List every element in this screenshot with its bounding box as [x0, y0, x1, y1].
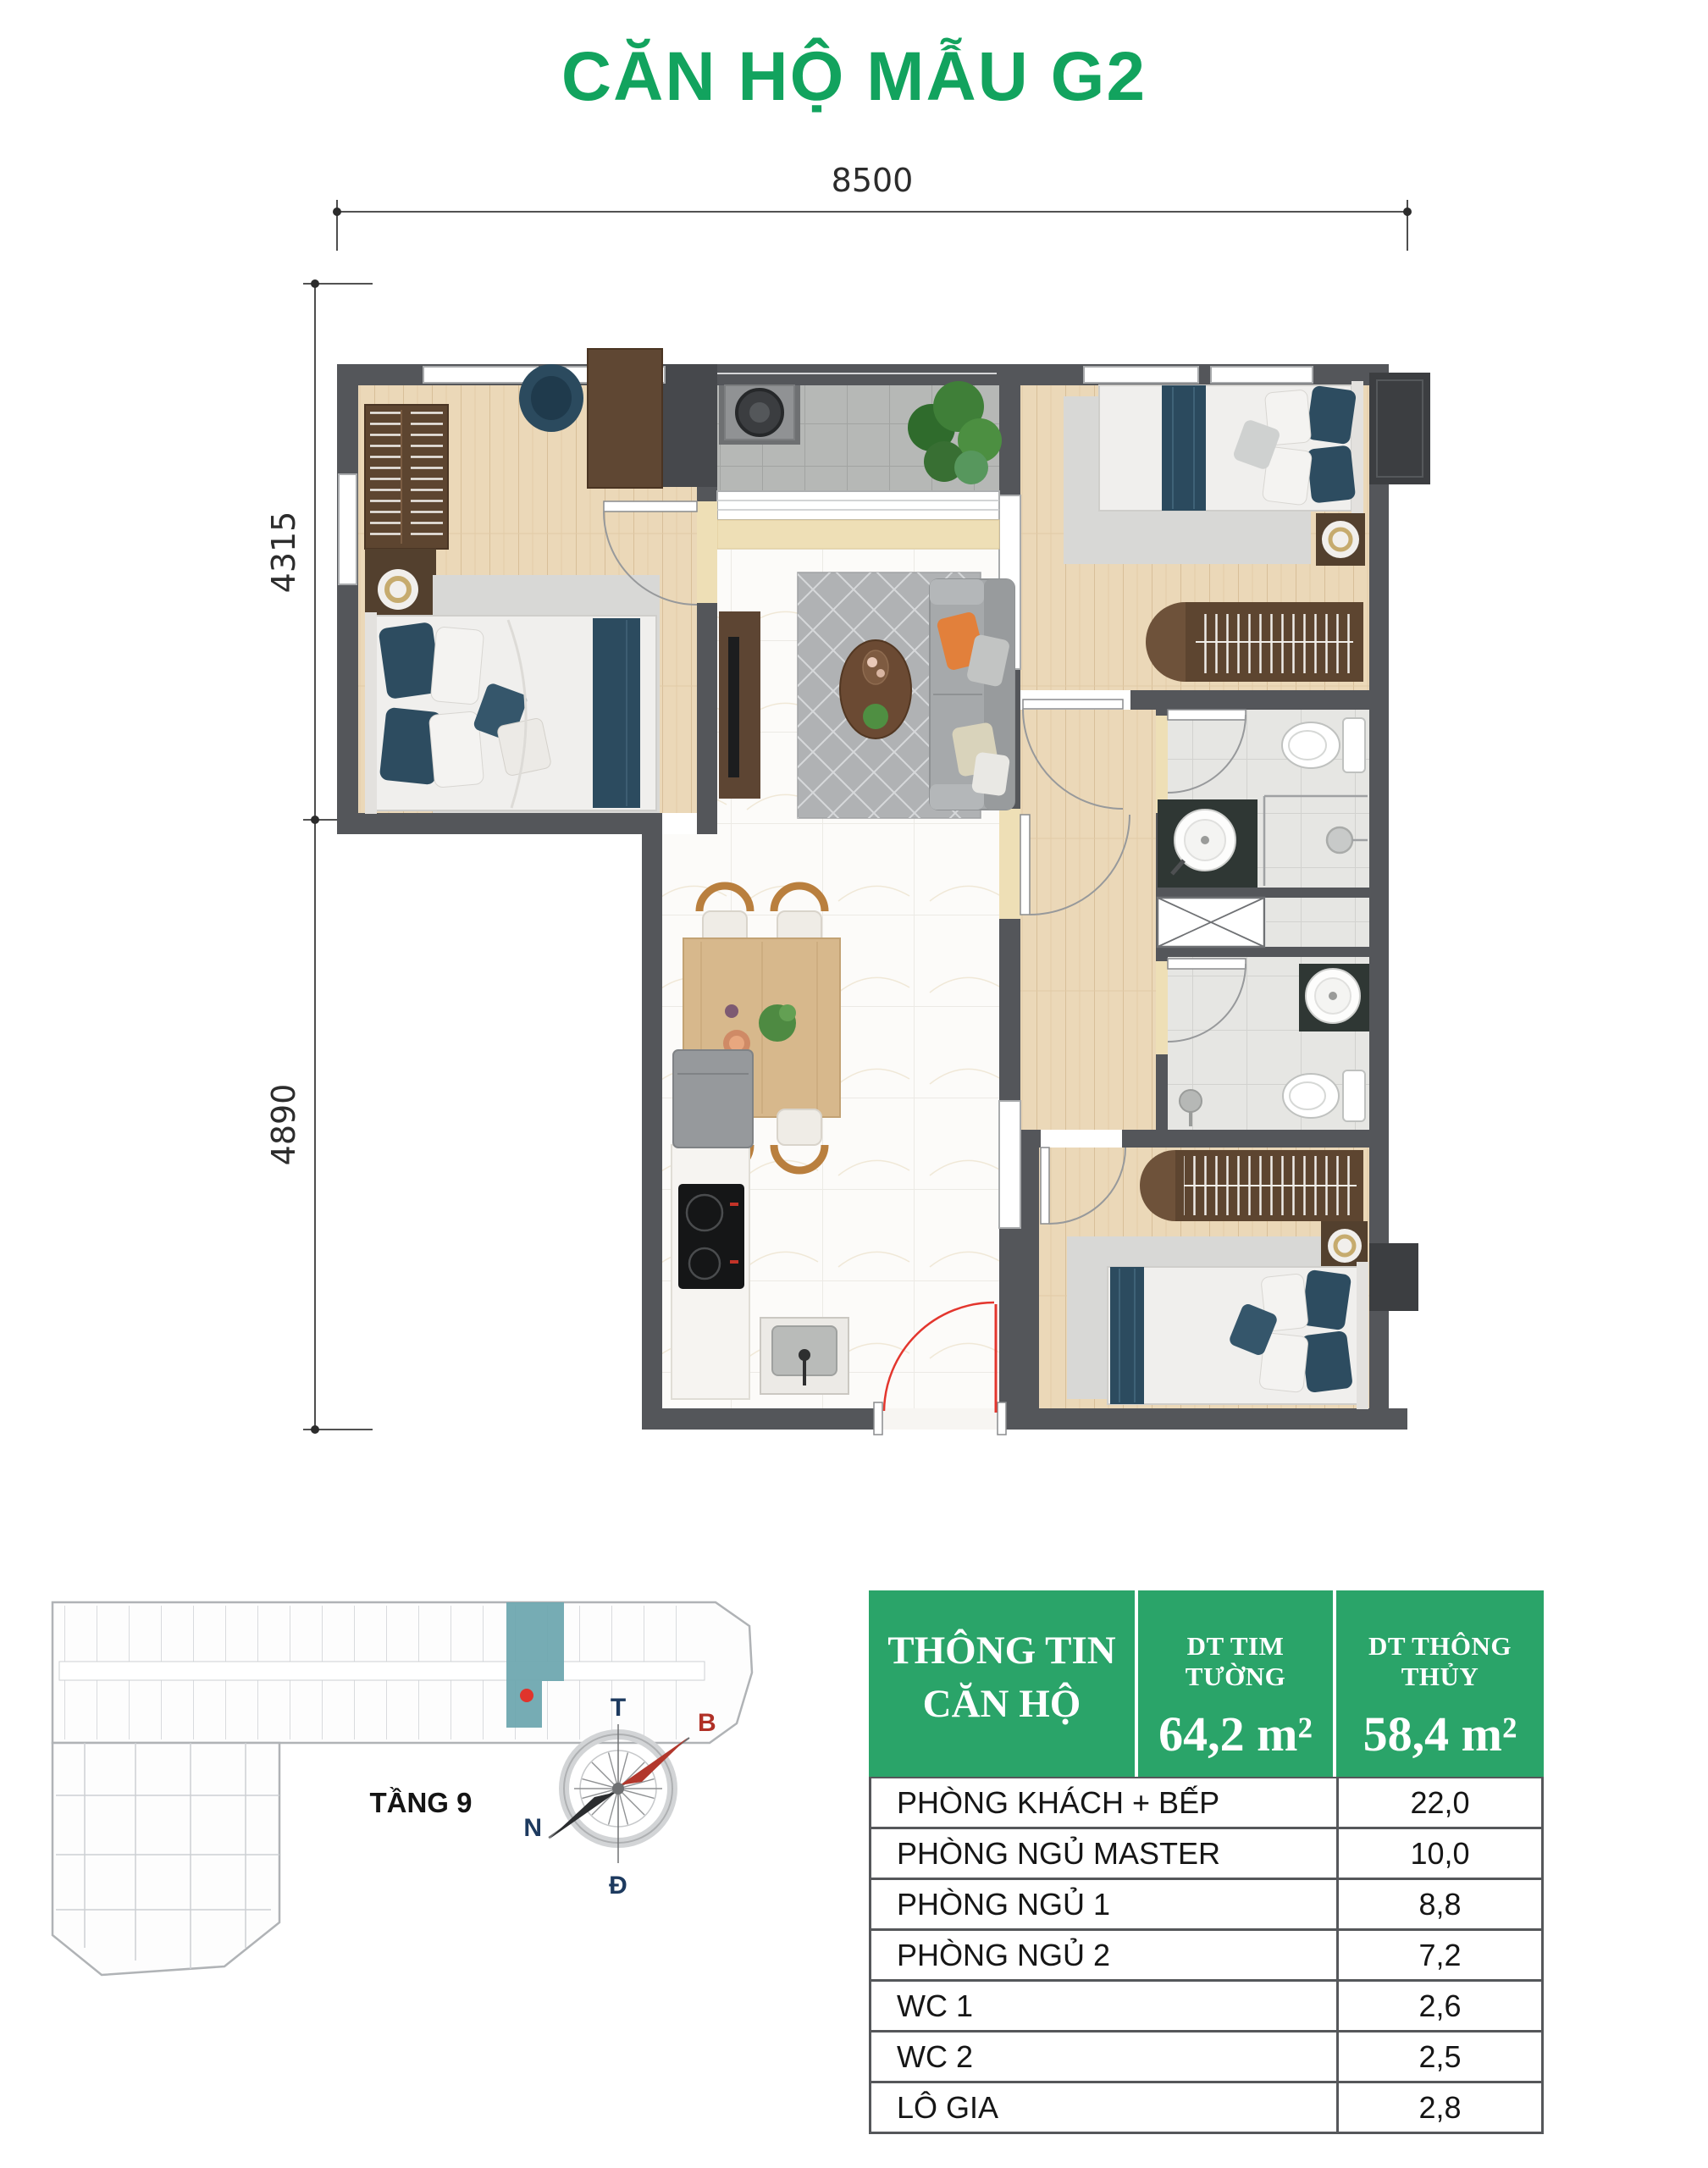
- apartment-info-table: THÔNG TIN CĂN HỘ DT TIM TƯỜNG 64,2 m² DT…: [869, 1590, 1544, 2134]
- room-name: PHÒNG NGỦ 2: [871, 1931, 1339, 1979]
- coffee-table: [840, 640, 911, 738]
- room-name: PHÒNG NGỦ 1: [871, 1880, 1339, 1928]
- room-area: 22,0: [1339, 1778, 1541, 1827]
- dim-height-lower-label: 4890: [265, 1084, 302, 1166]
- wc2-vessel-sink: [1299, 964, 1369, 1031]
- ac-ledge-block: [1369, 373, 1430, 484]
- table-row: LÔ GIA 2,8: [871, 2081, 1541, 2132]
- sofa: [930, 579, 1014, 810]
- apartment-plan: [337, 349, 1430, 1435]
- bedroom-1: [365, 349, 697, 814]
- room-area: 2,8: [1339, 2083, 1541, 2132]
- table-body: PHÒNG KHÁCH + BẾP 22,0 PHÒNG NGỦ MASTER …: [869, 1777, 1544, 2134]
- dim-width-label: 8500: [832, 162, 914, 199]
- kitchen-sink: [760, 1318, 848, 1394]
- page-title: CĂN HỘ MẪU G2: [0, 37, 1708, 117]
- room-name: WC 2: [871, 2032, 1339, 2081]
- room-name: PHÒNG KHÁCH + BẾP: [871, 1778, 1339, 1827]
- floorplan-page: 8500 4315 4890: [0, 0, 1708, 2168]
- room-area: 7,2: [1339, 1931, 1541, 1979]
- wc2-floor-drain: [1180, 1090, 1202, 1112]
- net-area-label: DT THÔNG THỦY: [1336, 1631, 1544, 1692]
- room-name: PHÒNG NGỦ MASTER: [871, 1829, 1339, 1878]
- table-row: WC 1 2,6: [871, 1979, 1541, 2030]
- bed-1: [365, 612, 656, 814]
- entry-threshold-floor: [881, 1408, 999, 1430]
- table-header-info: THÔNG TIN CĂN HỘ: [869, 1590, 1135, 1777]
- table-row: WC 2 2,5: [871, 2030, 1541, 2081]
- washing-machine: [725, 385, 794, 440]
- bed-2: [1108, 1262, 1368, 1409]
- room-name: WC 1: [871, 1982, 1339, 2030]
- room-area: 2,5: [1339, 2032, 1541, 2081]
- room-area: 10,0: [1339, 1829, 1541, 1878]
- gross-area-value: 64,2 m²: [1138, 1706, 1333, 1762]
- wc2-toilet: [1283, 1070, 1365, 1121]
- compass-label-south: N: [523, 1814, 542, 1842]
- fridge: [673, 1050, 753, 1148]
- wc1-toilet: [1282, 718, 1365, 772]
- room-name: LÔ GIA: [871, 2083, 1339, 2132]
- compass-label-east: Đ: [609, 1872, 627, 1900]
- table-header: THÔNG TIN CĂN HỘ DT TIM TƯỜNG 64,2 m² DT…: [869, 1590, 1544, 1777]
- service-block-bottom-right: [1369, 1243, 1418, 1311]
- master-bed: [1099, 381, 1363, 515]
- hallway-floor: [1020, 710, 1156, 1130]
- master-wardrobe: [1146, 602, 1363, 682]
- gross-area-label: DT TIM TƯỜNG: [1138, 1631, 1333, 1692]
- unit-marker-dot: [520, 1689, 533, 1702]
- cooktop: [678, 1184, 744, 1289]
- technical-shaft: [1158, 898, 1264, 947]
- wc1-vanity: [1158, 799, 1258, 888]
- table-row: PHÒNG NGỦ MASTER 10,0: [871, 1827, 1541, 1878]
- floor-label: TẦNG 9: [369, 1787, 472, 1818]
- table-row: PHÒNG NGỦ 1 8,8: [871, 1878, 1541, 1928]
- table-row: PHÒNG KHÁCH + BẾP 22,0: [871, 1778, 1541, 1827]
- dim-height-upper-label: 4315: [265, 512, 302, 594]
- room-area: 8,8: [1339, 1880, 1541, 1928]
- desk-1: [588, 349, 662, 488]
- room-area: 2,6: [1339, 1982, 1541, 2030]
- table-header-gross-area: DT TIM TƯỜNG 64,2 m²: [1138, 1590, 1333, 1777]
- tv-console: [719, 611, 760, 799]
- compass-label-north: B: [698, 1709, 716, 1737]
- tv: [728, 637, 739, 777]
- compass-label-west: T: [611, 1694, 626, 1722]
- table-row: PHÒNG NGỦ 2 7,2: [871, 1928, 1541, 1979]
- table-header-net-area: DT THÔNG THỦY 58,4 m²: [1336, 1590, 1544, 1777]
- net-area-value: 58,4 m²: [1336, 1706, 1544, 1762]
- wardrobe-2: [1140, 1150, 1363, 1221]
- balcony-sliding-window: [717, 491, 999, 549]
